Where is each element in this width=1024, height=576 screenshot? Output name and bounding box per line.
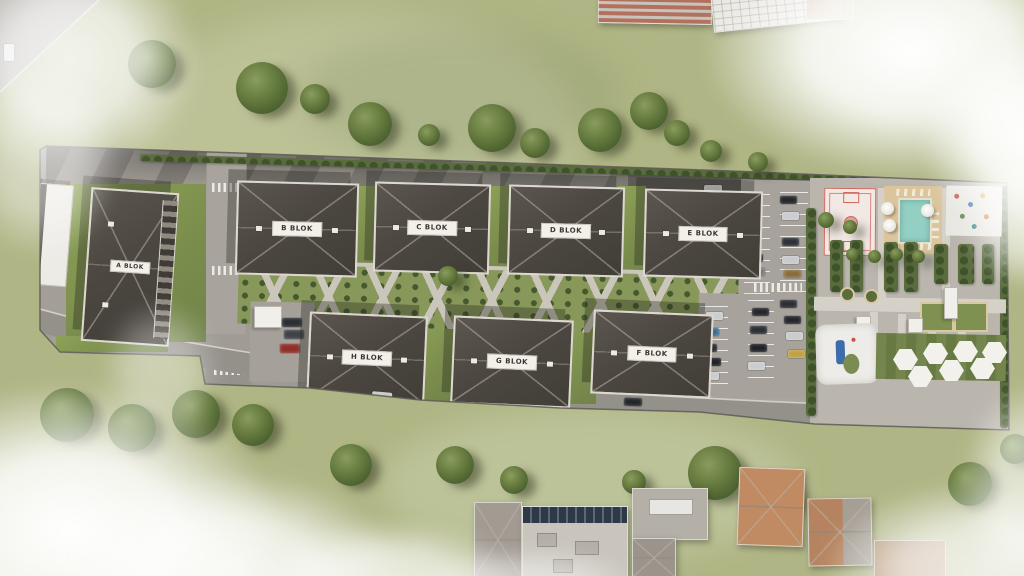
tree <box>232 404 274 446</box>
tree <box>912 250 925 263</box>
tree <box>468 104 516 152</box>
context-building <box>598 0 713 25</box>
building-a-blok: A BLOK <box>81 187 180 347</box>
lawn <box>954 302 988 332</box>
play-equipment <box>968 202 973 207</box>
car <box>784 316 801 324</box>
play-equipment <box>972 224 977 229</box>
tree <box>348 102 392 146</box>
tree <box>438 266 458 286</box>
block-label-plate: E BLOK <box>678 226 728 242</box>
tree <box>330 444 372 486</box>
tree <box>172 390 220 438</box>
tree <box>436 446 474 484</box>
court-key <box>843 192 859 203</box>
car <box>782 238 799 246</box>
building-h-blok: H BLOK <box>306 311 428 404</box>
roof-ridges <box>633 539 675 576</box>
car <box>748 362 765 370</box>
roof-vent <box>737 232 743 237</box>
sun-loungers <box>932 212 939 238</box>
roof-vent <box>327 354 333 359</box>
roof-ridges <box>738 468 805 546</box>
tree <box>700 140 722 162</box>
car <box>788 350 805 358</box>
block-label-plate: C BLOK <box>407 220 457 236</box>
site-plan-render: A BLOK B BLOK C BLOK D BLOK E BLOK <box>0 0 1024 576</box>
roof-vent <box>108 221 114 226</box>
tree <box>1000 434 1024 464</box>
pergola <box>944 287 958 319</box>
building-c-blok: C BLOK <box>373 181 491 274</box>
car <box>782 256 799 264</box>
tree <box>500 466 528 494</box>
sun-loungers <box>896 189 930 196</box>
building-g-blok: G BLOK <box>450 315 574 408</box>
roof-vent <box>393 224 399 229</box>
rooftop-unit <box>575 541 599 555</box>
roof-ridges <box>808 498 871 565</box>
play-equipment <box>980 193 985 198</box>
window-row <box>523 507 627 523</box>
context-building <box>874 540 946 576</box>
block-label-plate: D BLOK <box>541 223 592 239</box>
play-lawn <box>843 354 860 375</box>
car <box>282 318 302 327</box>
kiosk <box>254 306 282 328</box>
hedge <box>934 244 948 284</box>
roof-vent <box>527 227 533 232</box>
rooftop-unit <box>553 559 573 573</box>
context-building <box>807 497 872 566</box>
hedge <box>958 244 974 284</box>
context-building <box>522 506 628 576</box>
rooftop-unit <box>649 499 693 515</box>
roof-vent <box>471 358 477 363</box>
pool-umbrella <box>881 202 894 215</box>
tree <box>890 248 903 261</box>
context-building <box>474 502 522 576</box>
context-building <box>806 0 854 20</box>
roof-vent <box>401 357 407 362</box>
tree <box>108 404 156 452</box>
car <box>372 391 393 402</box>
play-equipment <box>984 214 989 219</box>
car <box>786 332 803 340</box>
roof-vent <box>102 302 108 307</box>
pergola <box>908 318 923 333</box>
roof-vent <box>663 230 669 235</box>
hedge <box>982 244 994 284</box>
planter <box>864 289 879 304</box>
tree <box>300 84 330 114</box>
tree <box>520 128 550 158</box>
tree <box>630 92 668 130</box>
car <box>4 44 14 61</box>
context-building <box>737 467 806 547</box>
tree <box>843 220 857 234</box>
tree <box>664 120 690 146</box>
roof-vent <box>546 361 552 366</box>
block-label-plate: H BLOK <box>342 349 393 366</box>
roof-vent <box>332 227 338 232</box>
crosswalk <box>214 366 244 375</box>
car <box>780 300 797 308</box>
building-f-blok: F BLOK <box>590 309 714 398</box>
context-building <box>632 488 708 540</box>
car <box>782 212 799 220</box>
building-d-blok: D BLOK <box>507 184 625 277</box>
roof-vent <box>611 350 617 355</box>
block-label-plate: G BLOK <box>487 353 538 370</box>
roof-vent <box>256 225 262 230</box>
play-equipment <box>851 338 855 342</box>
tree <box>236 62 288 114</box>
annex-building <box>22 178 43 291</box>
car <box>780 196 797 204</box>
tree <box>40 388 94 442</box>
lawn <box>8 330 38 362</box>
tree <box>818 212 834 228</box>
children-playground <box>815 323 879 385</box>
crosswalk <box>212 183 240 192</box>
tree <box>846 248 859 261</box>
car <box>284 330 304 339</box>
annex-roof-edge <box>33 184 47 284</box>
road <box>0 0 110 100</box>
pool-umbrella <box>921 204 934 217</box>
play-equipment <box>954 194 959 199</box>
planter <box>840 287 855 302</box>
car <box>784 270 801 278</box>
tree <box>948 462 992 506</box>
tree <box>868 250 881 263</box>
tree <box>128 40 176 88</box>
block-label-plate: F BLOK <box>627 345 677 362</box>
building-b-blok: B BLOK <box>235 180 359 277</box>
roof-vent <box>599 229 605 234</box>
hedge <box>830 240 843 292</box>
playground <box>946 186 1003 237</box>
pool-umbrella <box>883 219 896 232</box>
tree <box>418 124 440 146</box>
car <box>750 344 767 352</box>
roof-vent <box>686 353 692 358</box>
building-e-blok: E BLOK <box>643 188 763 279</box>
block-label-plate: B BLOK <box>272 221 322 237</box>
context-building <box>632 538 676 576</box>
tree <box>578 108 622 152</box>
play-equipment <box>960 214 965 219</box>
car <box>750 326 767 334</box>
roof-vent <box>465 226 471 231</box>
hedge <box>806 208 816 416</box>
grass-dark-patch <box>300 30 620 160</box>
roof-ridges <box>475 503 521 576</box>
car <box>752 308 769 316</box>
tree <box>748 152 768 172</box>
crosswalk <box>754 283 802 292</box>
car <box>280 344 300 353</box>
car <box>624 398 642 407</box>
rooftop-unit <box>537 533 557 547</box>
